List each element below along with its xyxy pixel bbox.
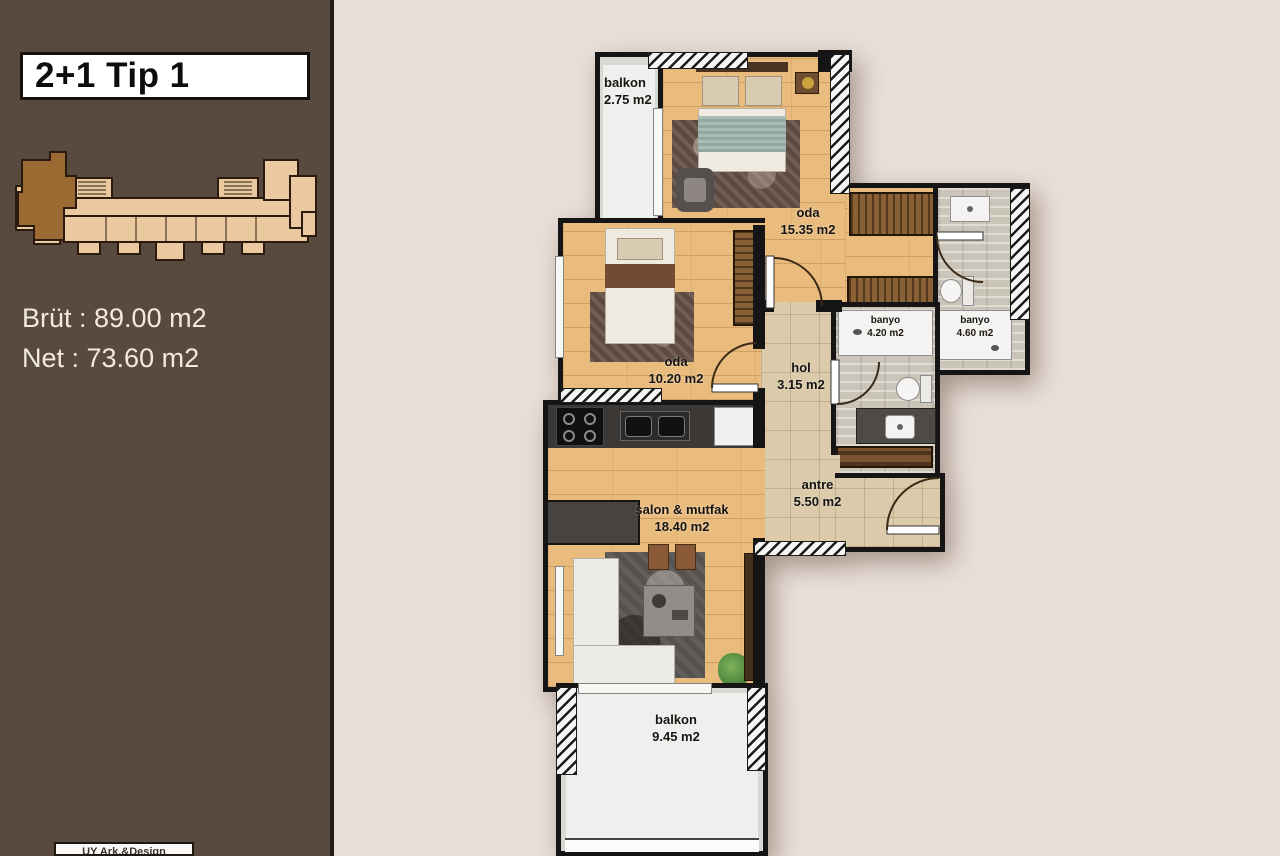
pillow <box>702 76 739 106</box>
floor-plan: banyo 4.60 m2 banyo 4.20 m2 <box>0 0 1280 856</box>
faucet <box>897 424 903 430</box>
armchair <box>676 168 714 212</box>
cooktop <box>556 407 604 446</box>
single-bed <box>603 228 677 344</box>
toilet-tank <box>962 276 974 306</box>
room-bathroom-small: banyo 4.20 m2 <box>831 302 940 478</box>
toilet-tank <box>920 375 932 403</box>
table-decor <box>672 610 688 620</box>
toilet <box>896 375 934 403</box>
coffee-table <box>643 585 695 637</box>
room-balcony-bottom <box>556 683 768 856</box>
wall-segment <box>753 388 765 448</box>
lamp <box>802 77 814 89</box>
burner <box>584 413 596 425</box>
wall-segment <box>753 538 765 698</box>
dining-chair <box>648 544 669 570</box>
room-label-bathroom-small: banyo 4.20 m2 <box>839 315 932 340</box>
kitchen-sink <box>620 411 690 441</box>
room-label-entry: antre5.50 m2 <box>775 477 860 511</box>
burner <box>584 430 596 442</box>
wardrobe <box>849 192 935 236</box>
room-label-bedroom-small: oda10.20 m2 <box>626 354 726 388</box>
room-label-balcony-bottom: balkon9.45 m2 <box>626 712 726 746</box>
faucet <box>967 206 973 212</box>
fridge <box>714 407 754 446</box>
sink <box>950 196 990 222</box>
bed-blanket <box>698 116 786 152</box>
window <box>555 256 564 358</box>
window <box>555 566 564 656</box>
pillow <box>617 238 663 260</box>
room-label-bedroom-master: oda15.35 m2 <box>758 205 858 239</box>
sofa <box>573 645 675 687</box>
dressing-area <box>845 183 940 310</box>
room-label-living-kitchen: salon & mutfak18.40 m2 <box>627 502 737 536</box>
vanity-counter <box>856 408 936 444</box>
room-label-hall: hol3.15 m2 <box>763 360 839 394</box>
floorplan-page: { "sidebar": { "title": "2+1 Tip 1", "gr… <box>0 0 1280 856</box>
shower: banyo 4.20 m2 <box>838 310 933 356</box>
hatched-wall <box>830 54 850 194</box>
shower-drain <box>991 345 999 351</box>
bed-blanket <box>605 264 675 288</box>
room-label-bathroom-large: banyo 4.60 m2 <box>939 315 1011 340</box>
storage-shelf <box>836 446 933 468</box>
balcony-railing <box>565 838 759 852</box>
wall-segment <box>756 300 774 312</box>
hatched-wall <box>556 687 577 775</box>
burner <box>563 430 575 442</box>
sink-basin <box>658 416 685 437</box>
room-label-balcony-top: balkon2.75 m2 <box>604 75 664 109</box>
hatched-wall <box>648 52 748 69</box>
burner <box>563 413 575 425</box>
nightstand <box>795 72 819 94</box>
dining-chair <box>675 544 696 570</box>
window <box>578 683 712 694</box>
armchair-cushion <box>684 178 706 202</box>
hatched-wall <box>754 541 846 556</box>
window <box>653 108 663 216</box>
room-living-kitchen <box>543 400 765 692</box>
pillow <box>745 76 782 106</box>
table-decor <box>652 594 666 608</box>
kitchen-counter <box>548 405 761 448</box>
wall-segment <box>816 300 842 312</box>
hatched-wall <box>1010 188 1030 320</box>
toilet <box>940 276 976 306</box>
wall-segment <box>753 225 765 349</box>
hatched-wall <box>747 687 766 771</box>
toilet-bowl <box>940 279 962 303</box>
toilet-bowl <box>896 377 920 401</box>
sink-basin <box>625 416 652 437</box>
hatched-wall <box>560 388 662 403</box>
sink <box>885 415 915 439</box>
double-bed <box>696 62 788 174</box>
shower-drain <box>853 329 862 335</box>
shower: banyo 4.60 m2 <box>938 310 1012 360</box>
